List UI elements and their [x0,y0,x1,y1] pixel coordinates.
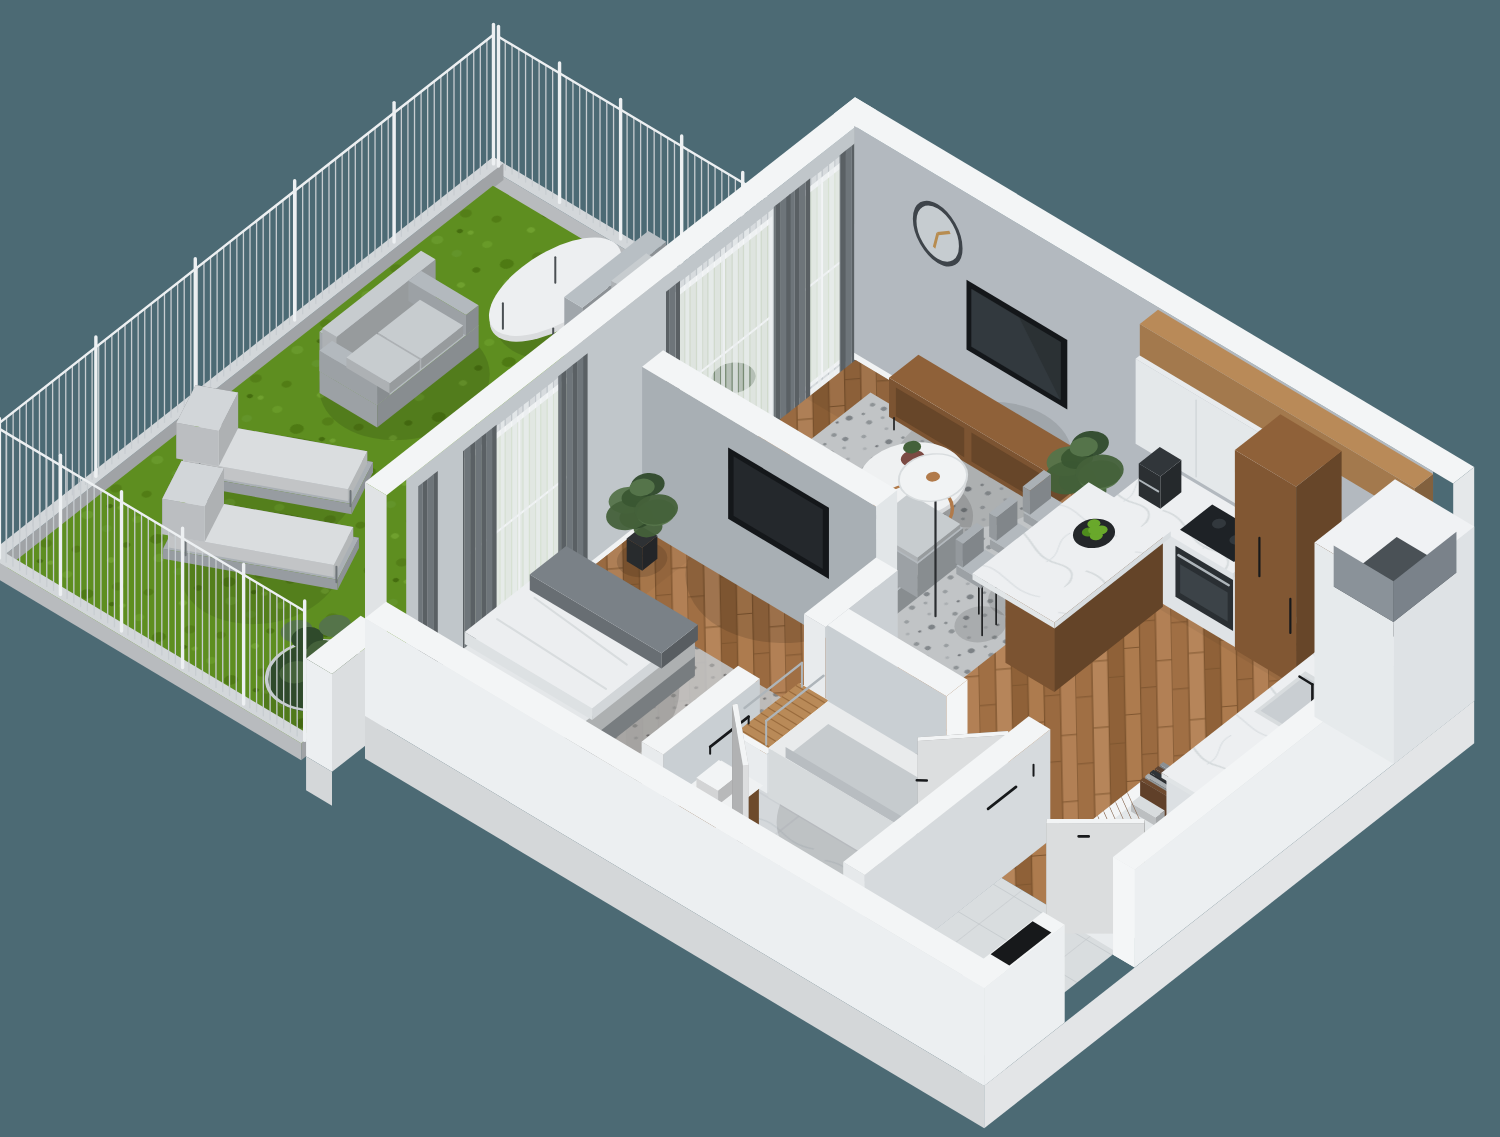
entrance-door [1046,819,1144,823]
floorplan-3d-render [0,0,1500,1137]
floorplan-stage: 3D isometric floor plan rendering of a o… [0,0,1500,1137]
